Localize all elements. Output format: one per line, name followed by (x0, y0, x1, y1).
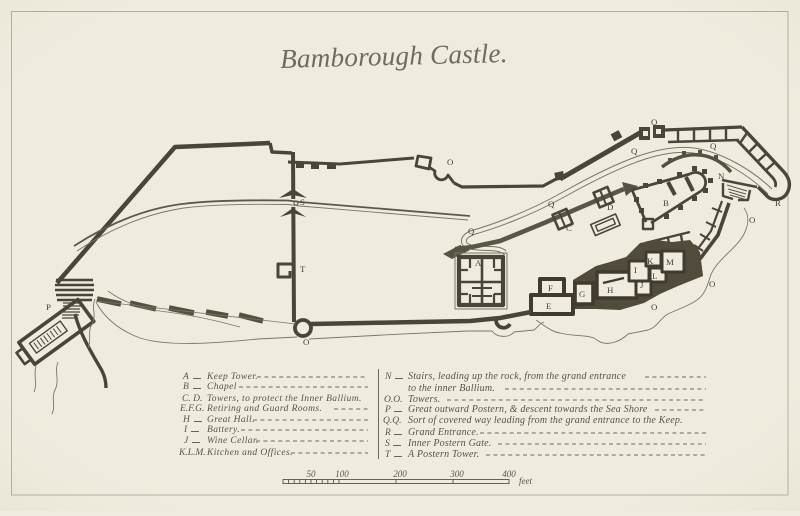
svg-text:Retiring and Guard Rooms.: Retiring and Guard Rooms. (206, 404, 322, 414)
svg-text:P: P (46, 302, 51, 312)
svg-text:O: O (651, 302, 657, 312)
svg-text:L: L (652, 271, 657, 281)
svg-text:M: M (666, 257, 674, 267)
svg-text:Wine Cellar.: Wine Cellar. (207, 436, 259, 446)
svg-text:Q.Q.: Q.Q. (383, 416, 401, 426)
svg-text:B: B (183, 382, 189, 392)
svg-text:O: O (651, 117, 657, 127)
svg-text:to the inner Ballium.: to the inner Ballium. (408, 383, 495, 394)
svg-text:G: G (579, 289, 586, 299)
svg-text:P: P (384, 405, 391, 415)
svg-text:Keep Tower.: Keep Tower. (206, 372, 258, 382)
svg-text:T: T (385, 450, 391, 460)
svg-text:O: O (709, 279, 715, 289)
svg-text:Great Hall.: Great Hall. (207, 415, 255, 425)
svg-text:Bamborough Castle.: Bamborough Castle. (280, 38, 508, 74)
svg-text:Q: Q (468, 226, 475, 236)
svg-text:O: O (303, 337, 309, 347)
svg-text:Great outward Postern, & desce: Great outward Postern, & descent towards… (408, 404, 648, 415)
svg-text:Grand Entrance.: Grand Entrance. (408, 427, 479, 438)
svg-text:H: H (182, 415, 191, 425)
svg-text:S: S (385, 439, 390, 449)
svg-text:C. D.: C. D. (182, 394, 202, 404)
svg-text:T: T (300, 264, 306, 274)
svg-text:200: 200 (393, 469, 407, 479)
svg-text:O.O.: O.O. (384, 395, 402, 405)
svg-text:E: E (546, 301, 551, 311)
svg-text:100: 100 (335, 469, 349, 479)
svg-text:Battery.: Battery. (207, 425, 240, 435)
svg-text:N: N (384, 372, 392, 382)
svg-text:A Postern Tower.: A Postern Tower. (407, 449, 479, 460)
svg-text:feet: feet (519, 476, 532, 486)
svg-text:Sort of covered way leading fr: Sort of covered way leading from the gra… (408, 415, 683, 426)
svg-text:I: I (634, 265, 637, 275)
svg-text:Q: Q (710, 141, 717, 151)
svg-text:C: C (566, 223, 572, 233)
svg-text:Kitchen and Offices.: Kitchen and Offices. (206, 447, 293, 458)
svg-text:H: H (607, 285, 614, 295)
svg-text:Towers, to protect the Inner B: Towers, to protect the Inner Ballium. (207, 394, 362, 404)
svg-text:O: O (447, 157, 453, 167)
svg-text:Stairs, leading up the rock, f: Stairs, leading up the rock, from the gr… (408, 371, 626, 382)
svg-text:400: 400 (502, 469, 516, 479)
svg-text:F: F (548, 283, 553, 293)
svg-text:N: N (718, 171, 725, 181)
svg-text:R: R (775, 198, 781, 208)
svg-text:K.L.M.: K.L.M. (178, 448, 206, 458)
svg-text:Q: Q (548, 199, 555, 209)
svg-text:B: B (663, 198, 669, 208)
svg-text:R: R (384, 428, 391, 438)
svg-text:J: J (640, 280, 644, 290)
svg-text:K: K (647, 256, 654, 266)
svg-text:Chapel: Chapel (207, 382, 237, 392)
svg-text:Q: Q (631, 146, 638, 156)
svg-text:S: S (300, 197, 305, 207)
svg-text:300: 300 (449, 469, 464, 479)
svg-text:O: O (749, 215, 755, 225)
svg-text:A: A (475, 258, 482, 268)
svg-text:E.F.G.: E.F.G. (179, 404, 204, 414)
svg-text:A: A (182, 372, 189, 382)
svg-text:50: 50 (307, 469, 317, 479)
svg-text:D: D (607, 202, 613, 212)
svg-text:Inner Postern Gate.: Inner Postern Gate. (407, 438, 492, 449)
